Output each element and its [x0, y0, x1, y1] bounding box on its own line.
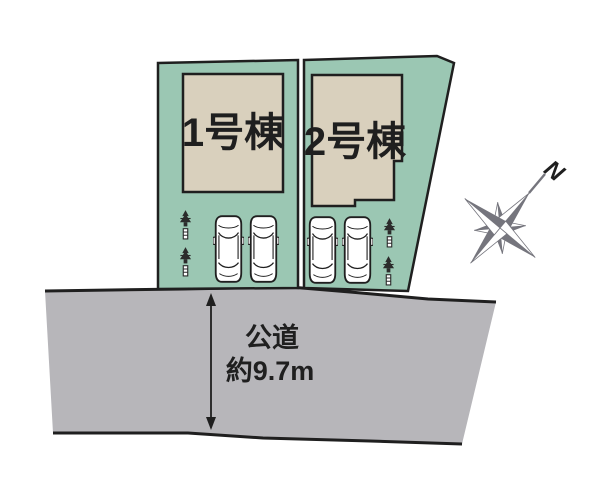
road-name-label: 公道 [245, 322, 299, 353]
plan-drawing: 1号棟 2号棟 公道 約9.7m [0, 0, 600, 495]
plot-layout-map: 1号棟 2号棟 公道 約9.7m [0, 0, 600, 495]
car-icon [248, 216, 279, 282]
building-2-label: 2号棟 [304, 120, 407, 164]
road-width-label: 約9.7m [226, 355, 315, 386]
compass-rose-icon: N [465, 155, 570, 263]
building-1-label: 1号棟 [182, 111, 285, 155]
car-icon [213, 216, 244, 282]
car-icon [342, 217, 373, 283]
north-label: N [539, 155, 570, 187]
car-icon [307, 217, 338, 283]
